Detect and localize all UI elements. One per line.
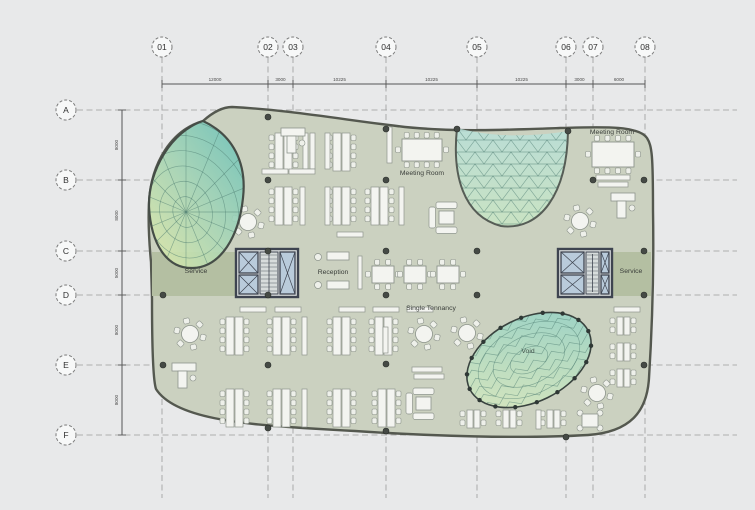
chair — [375, 260, 380, 266]
chair — [351, 189, 356, 195]
node-dot — [265, 425, 271, 431]
round-table — [572, 213, 589, 230]
chair — [631, 370, 636, 376]
chair — [398, 272, 403, 278]
chair — [414, 133, 419, 139]
chair — [269, 198, 274, 204]
chair — [636, 152, 641, 158]
chair — [396, 418, 401, 424]
desk-pair-table — [503, 410, 509, 428]
chair — [269, 135, 274, 141]
reception-stool — [315, 254, 322, 261]
node-dot — [265, 114, 271, 120]
chair — [351, 207, 356, 213]
grid-bubble-label: B — [63, 175, 69, 185]
desk-bank-table — [235, 389, 243, 427]
chair — [351, 319, 356, 325]
chair — [481, 420, 486, 426]
node-dot — [160, 362, 166, 368]
dim-label-top: 12000 — [209, 77, 222, 82]
chair — [375, 284, 380, 290]
desk-pair-table — [474, 410, 480, 428]
chair — [220, 391, 225, 397]
grid-bubble-label: A — [63, 105, 69, 115]
chair — [431, 272, 436, 278]
grid-bubble-label: 08 — [640, 42, 650, 52]
node-dot — [265, 292, 271, 298]
chair — [460, 317, 467, 324]
chair — [424, 133, 429, 139]
chair — [434, 133, 439, 139]
grid-bubble-label: 02 — [263, 42, 273, 52]
grid-bubble-row-D: D — [56, 285, 76, 305]
node-dot — [563, 434, 569, 440]
chair — [496, 420, 501, 426]
storage-shelf — [414, 374, 444, 379]
chair — [440, 284, 445, 290]
chair — [365, 216, 370, 222]
desk-bank-table — [273, 317, 281, 355]
chair — [244, 337, 249, 343]
chair — [267, 400, 272, 406]
chair — [580, 231, 587, 238]
desk-bank-table — [375, 317, 383, 355]
chair — [372, 418, 377, 424]
chair — [327, 337, 332, 343]
chair — [293, 153, 298, 159]
chair — [244, 328, 249, 334]
l-shaped-desk — [172, 363, 196, 371]
storage-cabinet — [302, 389, 307, 427]
reception-desk — [327, 252, 349, 260]
chair — [351, 198, 356, 204]
chair — [267, 391, 272, 397]
storage-shelf — [262, 169, 288, 174]
node-dot — [383, 361, 389, 367]
chair — [372, 409, 377, 415]
node-dot — [265, 177, 271, 183]
dim-label-top: 3000 — [574, 77, 585, 82]
chair — [586, 152, 591, 158]
chair — [496, 411, 501, 417]
chair — [573, 205, 580, 212]
chair — [258, 222, 265, 229]
desk-pair-table — [617, 317, 623, 335]
chair — [291, 319, 296, 325]
chair — [414, 162, 419, 168]
desk-bank-table — [342, 389, 350, 427]
chair — [610, 344, 615, 350]
chair — [291, 409, 296, 415]
meeting-table — [592, 142, 634, 167]
grid-bubble-row-A: A — [56, 100, 76, 120]
label-meeting-room-center: Meeting Room — [400, 170, 445, 177]
chair — [174, 327, 181, 334]
desk-bank-table — [282, 389, 290, 427]
storage-shelf — [275, 307, 301, 312]
dim-label-top: 10225 — [515, 77, 528, 82]
node-dot — [265, 248, 271, 254]
chair — [434, 162, 439, 168]
grid-bubble-label: E — [63, 360, 69, 370]
chair — [293, 162, 298, 168]
dim-label-left: 8000 — [114, 324, 119, 335]
grid-bubble-col-02: 02 — [258, 37, 278, 57]
desk-pair-table — [617, 369, 623, 387]
chair — [610, 379, 615, 385]
storage-cabinet — [303, 133, 308, 169]
grid-bubble-label: 01 — [157, 42, 167, 52]
chair — [393, 337, 398, 343]
chair — [351, 135, 356, 141]
sofa — [413, 388, 434, 395]
chair — [351, 391, 356, 397]
chair — [597, 403, 604, 410]
storage-shelf — [373, 307, 399, 312]
chair — [517, 420, 522, 426]
desk-bank-table — [342, 187, 350, 225]
dim-label-left: 8000 — [114, 394, 119, 405]
chair — [351, 400, 356, 406]
chair — [607, 393, 614, 400]
node-dot — [641, 248, 647, 254]
chair — [389, 207, 394, 213]
chair — [244, 346, 249, 352]
chair — [386, 284, 391, 290]
chair — [267, 409, 272, 415]
chair — [408, 327, 415, 334]
dim-label-top: 10225 — [333, 77, 346, 82]
desk-bank-table — [275, 133, 283, 171]
dim-label-left: 5000 — [114, 267, 119, 278]
chair — [477, 333, 484, 340]
chair — [267, 328, 272, 334]
chair — [351, 346, 356, 352]
chair — [460, 411, 465, 417]
desk-bank-table — [378, 389, 386, 427]
desk-pair-table — [554, 410, 560, 428]
chair — [369, 346, 374, 352]
storage-cabinet — [387, 127, 392, 163]
grid-bubble-col-07: 07 — [583, 37, 603, 57]
chair — [610, 370, 615, 376]
chair — [220, 409, 225, 415]
chair — [440, 260, 445, 266]
grid-bubble-row-B: B — [56, 170, 76, 190]
chair — [424, 344, 431, 351]
grid-bubble-label: 04 — [381, 42, 391, 52]
l-shaped-desk — [287, 136, 296, 153]
meeting-table — [437, 266, 459, 283]
chair — [517, 411, 522, 417]
grid-bubble-row-E: E — [56, 355, 76, 375]
chair — [393, 319, 398, 325]
meeting-table — [402, 139, 442, 161]
node-dot — [160, 292, 166, 298]
chair — [190, 375, 196, 381]
chair — [365, 198, 370, 204]
dim-label-left: 8000 — [114, 210, 119, 221]
chair — [404, 133, 409, 139]
chair — [365, 207, 370, 213]
meeting-table — [372, 266, 394, 283]
grid-bubble-label: 05 — [472, 42, 482, 52]
chair — [293, 189, 298, 195]
node-dot — [383, 292, 389, 298]
chair — [291, 391, 296, 397]
chair — [351, 328, 356, 334]
desk-bank-table — [284, 187, 292, 225]
desk-bank-table — [387, 389, 395, 427]
label-meeting-room-top-right: Meeting Room — [590, 129, 635, 136]
storage-shelf — [289, 169, 315, 174]
chair — [369, 328, 374, 334]
chair — [626, 136, 631, 142]
reception-screen — [358, 256, 362, 289]
chair — [327, 319, 332, 325]
chair — [269, 189, 274, 195]
chair — [244, 409, 249, 415]
grid-bubble-label: D — [63, 290, 69, 300]
chair — [434, 334, 441, 341]
l-shaped-desk — [281, 128, 305, 136]
chair — [293, 216, 298, 222]
chair — [481, 411, 486, 417]
grid-bubble-label: 03 — [288, 42, 298, 52]
chair — [418, 284, 423, 290]
chair — [327, 346, 332, 352]
node-dot — [383, 177, 389, 183]
chair — [220, 319, 225, 325]
chair — [564, 214, 571, 221]
chair — [369, 319, 374, 325]
chair — [183, 318, 190, 325]
storage-shelf — [596, 175, 630, 180]
round-table — [589, 385, 606, 402]
dim-label-top: 3000 — [275, 77, 286, 82]
chair — [631, 344, 636, 350]
chair — [220, 346, 225, 352]
chair — [561, 420, 566, 426]
desk-bank-table — [235, 317, 243, 355]
chair — [451, 260, 456, 266]
chair — [393, 346, 398, 352]
chair — [451, 326, 458, 333]
chair — [351, 144, 356, 150]
desk-bank-table — [333, 133, 341, 171]
grid-bubble-label: 07 — [588, 42, 598, 52]
floor-plan: 1200030001022510225102253000600080008000… — [0, 0, 755, 510]
desk-pair-table — [617, 343, 623, 361]
storage-shelf — [598, 182, 628, 187]
chair — [594, 168, 599, 174]
chair — [244, 391, 249, 397]
node-dot — [454, 126, 460, 132]
chair — [327, 400, 332, 406]
chair — [590, 221, 597, 228]
label-service-right: Service — [620, 268, 643, 275]
chair — [393, 328, 398, 334]
storage-cabinet — [383, 327, 388, 353]
node-dot — [383, 126, 389, 132]
storage-cabinet — [300, 187, 305, 225]
chair — [369, 337, 374, 343]
desk-pair-table — [467, 410, 473, 428]
reception-desk — [327, 281, 349, 289]
desk-pair-table — [510, 410, 516, 428]
chair — [389, 198, 394, 204]
label-reception: Reception — [318, 269, 349, 276]
chair — [451, 284, 456, 290]
chair — [267, 319, 272, 325]
node-dot — [590, 177, 596, 183]
grid-bubble-row-C: C — [56, 241, 76, 261]
grid-bubble-col-06: 06 — [556, 37, 576, 57]
chair — [327, 418, 332, 424]
desk-pair-table — [624, 343, 630, 361]
dim-label-top: 10225 — [425, 77, 438, 82]
chair — [610, 327, 615, 333]
chair — [267, 418, 272, 424]
chair — [267, 337, 272, 343]
chair — [444, 147, 449, 153]
node-dot — [641, 292, 647, 298]
storage-shelf — [339, 307, 365, 312]
chair — [610, 318, 615, 324]
chair — [418, 260, 423, 266]
node-dot — [474, 248, 480, 254]
label-service-left: Service — [185, 268, 208, 275]
sofa — [406, 393, 413, 414]
chair — [610, 353, 615, 359]
chair — [407, 284, 412, 290]
chair — [386, 260, 391, 266]
chair — [327, 328, 332, 334]
storage-cabinet — [536, 410, 541, 429]
chair — [351, 337, 356, 343]
desk-bank-table — [333, 389, 341, 427]
chair — [389, 216, 394, 222]
chair — [244, 418, 249, 424]
chair — [291, 346, 296, 352]
sofa — [413, 413, 434, 420]
round-table — [459, 325, 476, 342]
chair — [581, 386, 588, 393]
grid-bubble-row-F: F — [56, 425, 76, 445]
chair — [190, 344, 197, 351]
chair — [220, 418, 225, 424]
node-dot — [641, 177, 647, 183]
chair — [291, 418, 296, 424]
chair — [396, 400, 401, 406]
sofa — [436, 202, 457, 209]
node-dot — [474, 292, 480, 298]
dim-label-left: 8000 — [114, 139, 119, 150]
l-shaped-desk — [611, 193, 635, 201]
chair — [561, 411, 566, 417]
chair — [594, 136, 599, 142]
chair — [351, 409, 356, 415]
round-table — [240, 214, 257, 231]
coffee-table — [439, 211, 454, 224]
meeting-table — [404, 266, 426, 283]
grid-bubble-col-01: 01 — [152, 37, 172, 57]
chair — [351, 216, 356, 222]
chair — [365, 189, 370, 195]
storage-shelf — [412, 367, 442, 372]
chair — [293, 207, 298, 213]
chair — [220, 328, 225, 334]
chair — [424, 162, 429, 168]
chair — [417, 318, 424, 325]
chair — [631, 353, 636, 359]
storage-shelf — [240, 307, 266, 312]
chair — [269, 144, 274, 150]
chair — [396, 409, 401, 415]
node-dot — [383, 248, 389, 254]
chair — [244, 400, 249, 406]
floor-plan-canvas: 1200030001022510225102253000600080008000… — [0, 0, 755, 510]
chair — [615, 136, 620, 142]
round-table — [182, 326, 199, 343]
chair — [327, 409, 332, 415]
chair — [605, 168, 610, 174]
desk-bank-table — [342, 317, 350, 355]
chair — [366, 272, 371, 278]
chair — [629, 205, 635, 211]
desk-pair-table — [547, 410, 553, 428]
chair — [389, 189, 394, 195]
desk-bank-table — [380, 187, 388, 225]
desk-bank-table — [273, 389, 281, 427]
chair — [605, 136, 610, 142]
storage-shelf — [337, 232, 363, 237]
chair — [269, 162, 274, 168]
chair — [404, 162, 409, 168]
storage-cabinet — [399, 187, 404, 225]
chair — [244, 319, 249, 325]
square-table — [582, 414, 598, 427]
desk-bank-table — [282, 317, 290, 355]
chair — [293, 198, 298, 204]
node-dot — [565, 128, 571, 134]
coffee-table — [416, 397, 431, 410]
dim-label-top: 6000 — [614, 77, 625, 82]
storage-cabinet — [325, 187, 330, 225]
desk-bank-table — [275, 187, 283, 225]
label-single-tenancy: Single Tennancy — [406, 305, 456, 312]
chair — [626, 168, 631, 174]
sofa — [436, 227, 457, 234]
chair — [291, 328, 296, 334]
sofa — [429, 207, 436, 228]
grid-bubble-label: C — [63, 246, 69, 256]
chair — [372, 400, 377, 406]
chair — [631, 318, 636, 324]
chair — [291, 337, 296, 343]
chair — [590, 377, 597, 384]
node-dot — [383, 428, 389, 434]
reception-stool — [315, 282, 322, 289]
desk-bank-table — [342, 133, 350, 171]
label-void: Void — [521, 348, 534, 355]
storage-cabinet — [325, 133, 330, 169]
chair — [200, 334, 207, 341]
chair — [461, 272, 466, 278]
chair — [220, 400, 225, 406]
chair — [460, 420, 465, 426]
chair — [351, 162, 356, 168]
